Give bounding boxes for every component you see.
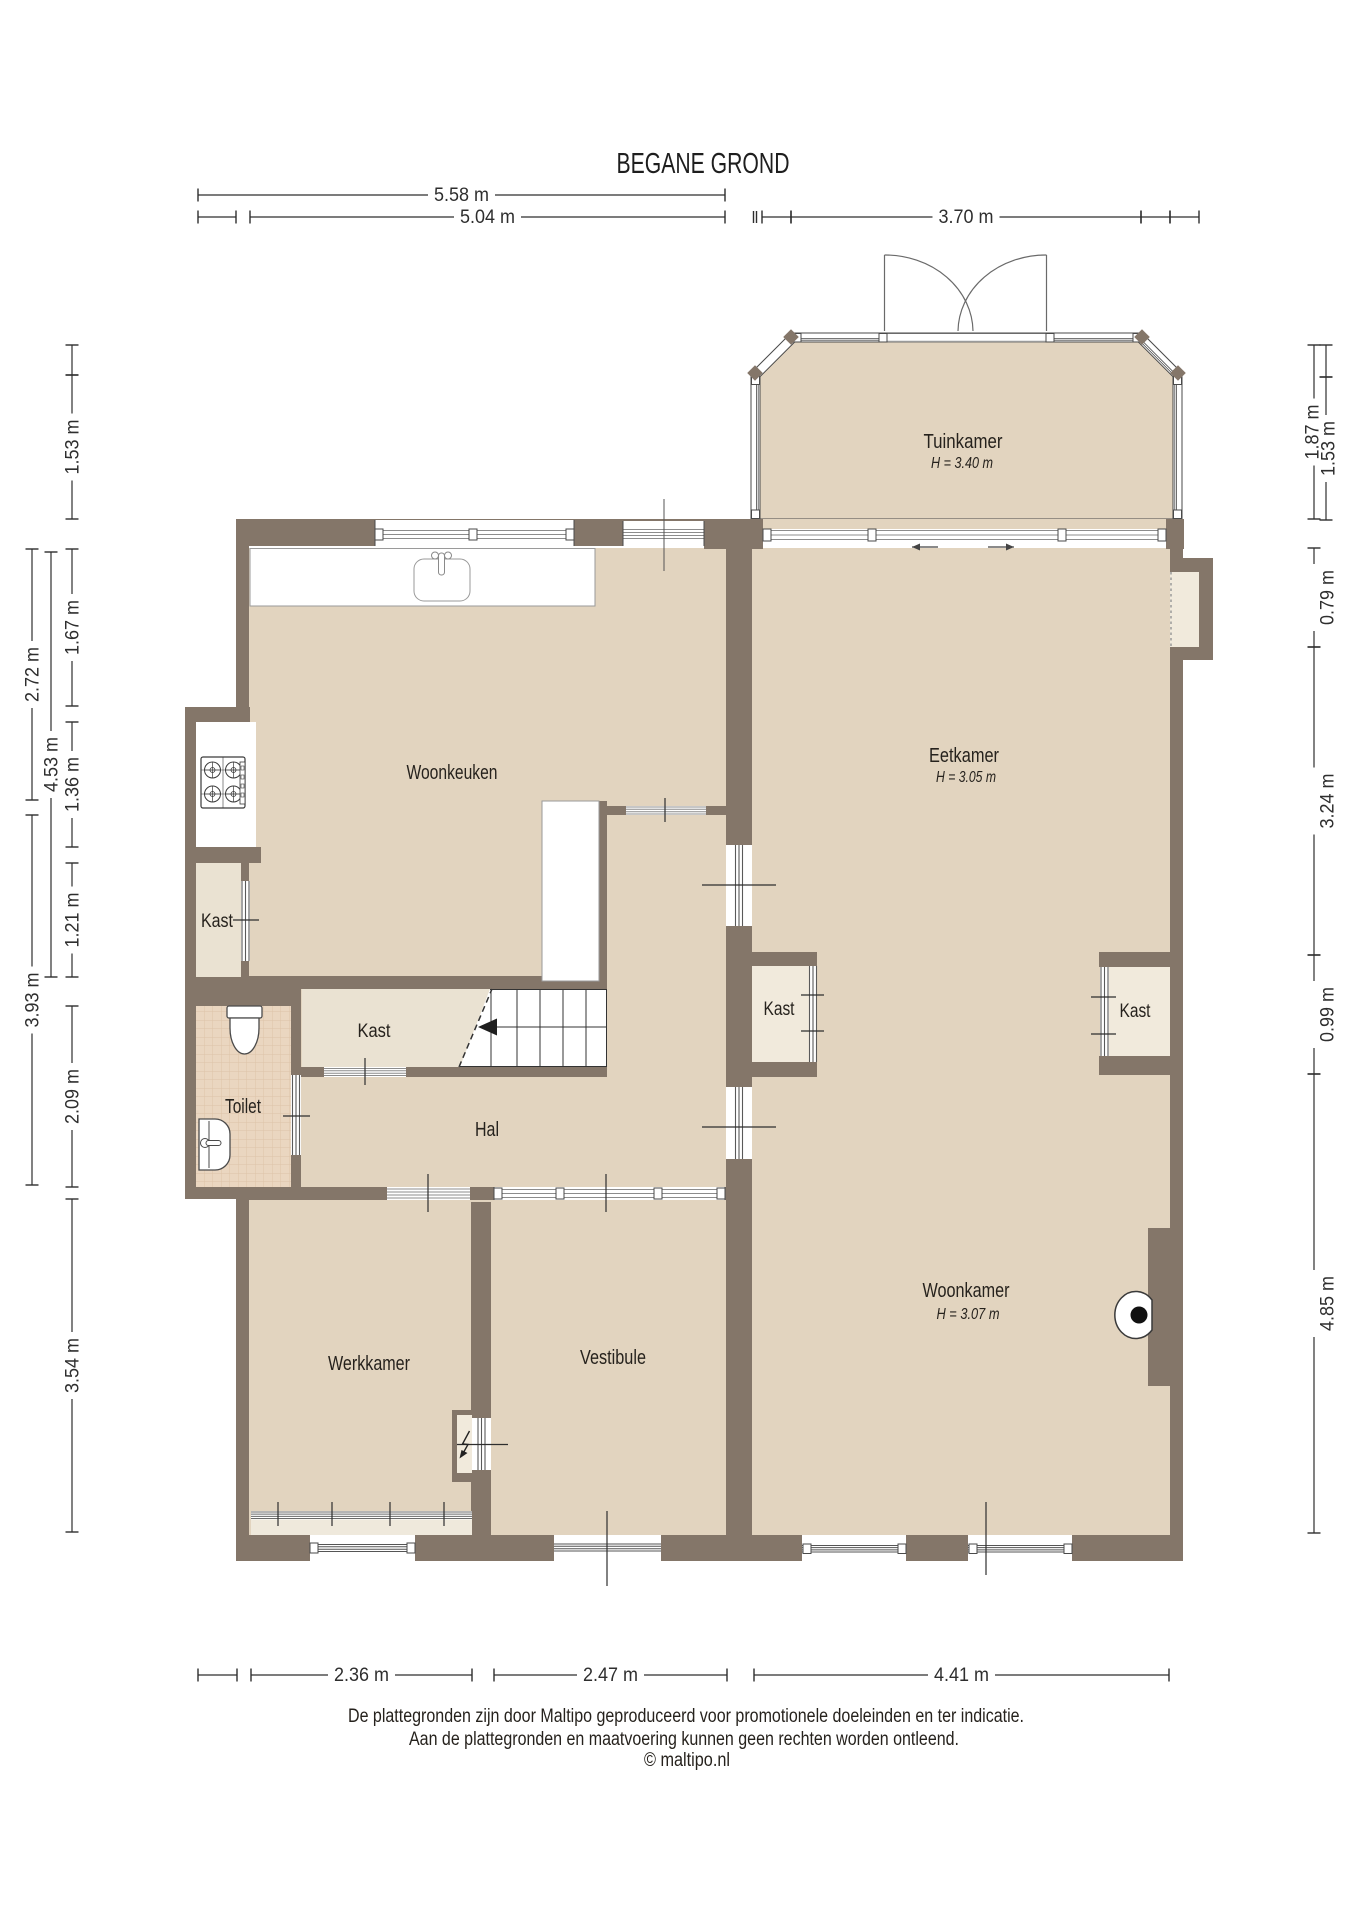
svg-text:0.79 m: 0.79 m	[1318, 570, 1339, 625]
svg-text:1.53 m: 1.53 m	[63, 420, 84, 475]
svg-text:Toilet: Toilet	[225, 1096, 261, 1118]
svg-text:3.70 m: 3.70 m	[939, 207, 994, 228]
svg-text:Werkkamer: Werkkamer	[328, 1353, 410, 1375]
svg-text:© maltipo.nl: © maltipo.nl	[644, 1750, 730, 1771]
svg-text:2.72 m: 2.72 m	[23, 647, 44, 702]
svg-text:Aan de plattegronden en maatvo: Aan de plattegronden en maatvoering kunn…	[409, 1729, 959, 1750]
svg-text:4.53 m: 4.53 m	[42, 737, 63, 792]
svg-text:Hal: Hal	[475, 1119, 499, 1141]
svg-text:3.93 m: 3.93 m	[23, 973, 44, 1028]
svg-text:1.36 m: 1.36 m	[63, 757, 84, 812]
svg-text:3.24 m: 3.24 m	[1318, 774, 1339, 829]
svg-text:Kast: Kast	[764, 999, 796, 1020]
svg-text:4.85 m: 4.85 m	[1318, 1276, 1339, 1331]
svg-text:4.41 m: 4.41 m	[934, 1665, 989, 1686]
svg-text:Vestibule: Vestibule	[580, 1347, 646, 1369]
svg-text:2.09 m: 2.09 m	[63, 1069, 84, 1124]
svg-text:H = 3.40 m: H = 3.40 m	[931, 455, 993, 472]
svg-text:Kast: Kast	[1120, 1001, 1152, 1022]
svg-text:Kast: Kast	[358, 1021, 392, 1042]
svg-text:De plattegronden zijn door Mal: De plattegronden zijn door Maltipo gepro…	[348, 1706, 1024, 1727]
svg-text:Kast: Kast	[201, 911, 234, 932]
svg-text:1.53 m: 1.53 m	[1319, 421, 1340, 476]
svg-text:5.04 m: 5.04 m	[460, 207, 515, 228]
svg-text:BEGANE GROND: BEGANE GROND	[617, 148, 790, 180]
svg-text:2.36 m: 2.36 m	[334, 1665, 389, 1686]
svg-text:Woonkamer: Woonkamer	[923, 1280, 1010, 1302]
svg-text:H = 3.05 m: H = 3.05 m	[936, 769, 996, 786]
svg-text:1.21 m: 1.21 m	[63, 893, 84, 948]
svg-text:5.58 m: 5.58 m	[434, 185, 489, 206]
svg-text:Woonkeuken: Woonkeuken	[407, 762, 498, 784]
svg-text:H = 3.07 m: H = 3.07 m	[937, 1306, 1000, 1323]
svg-text:2.47 m: 2.47 m	[583, 1665, 638, 1686]
svg-text:0.99 m: 0.99 m	[1318, 987, 1339, 1042]
svg-text:Eetkamer: Eetkamer	[929, 745, 999, 767]
svg-text:3.54 m: 3.54 m	[63, 1338, 84, 1393]
svg-text:1.67 m: 1.67 m	[63, 600, 84, 655]
svg-text:Tuinkamer: Tuinkamer	[924, 431, 1003, 453]
